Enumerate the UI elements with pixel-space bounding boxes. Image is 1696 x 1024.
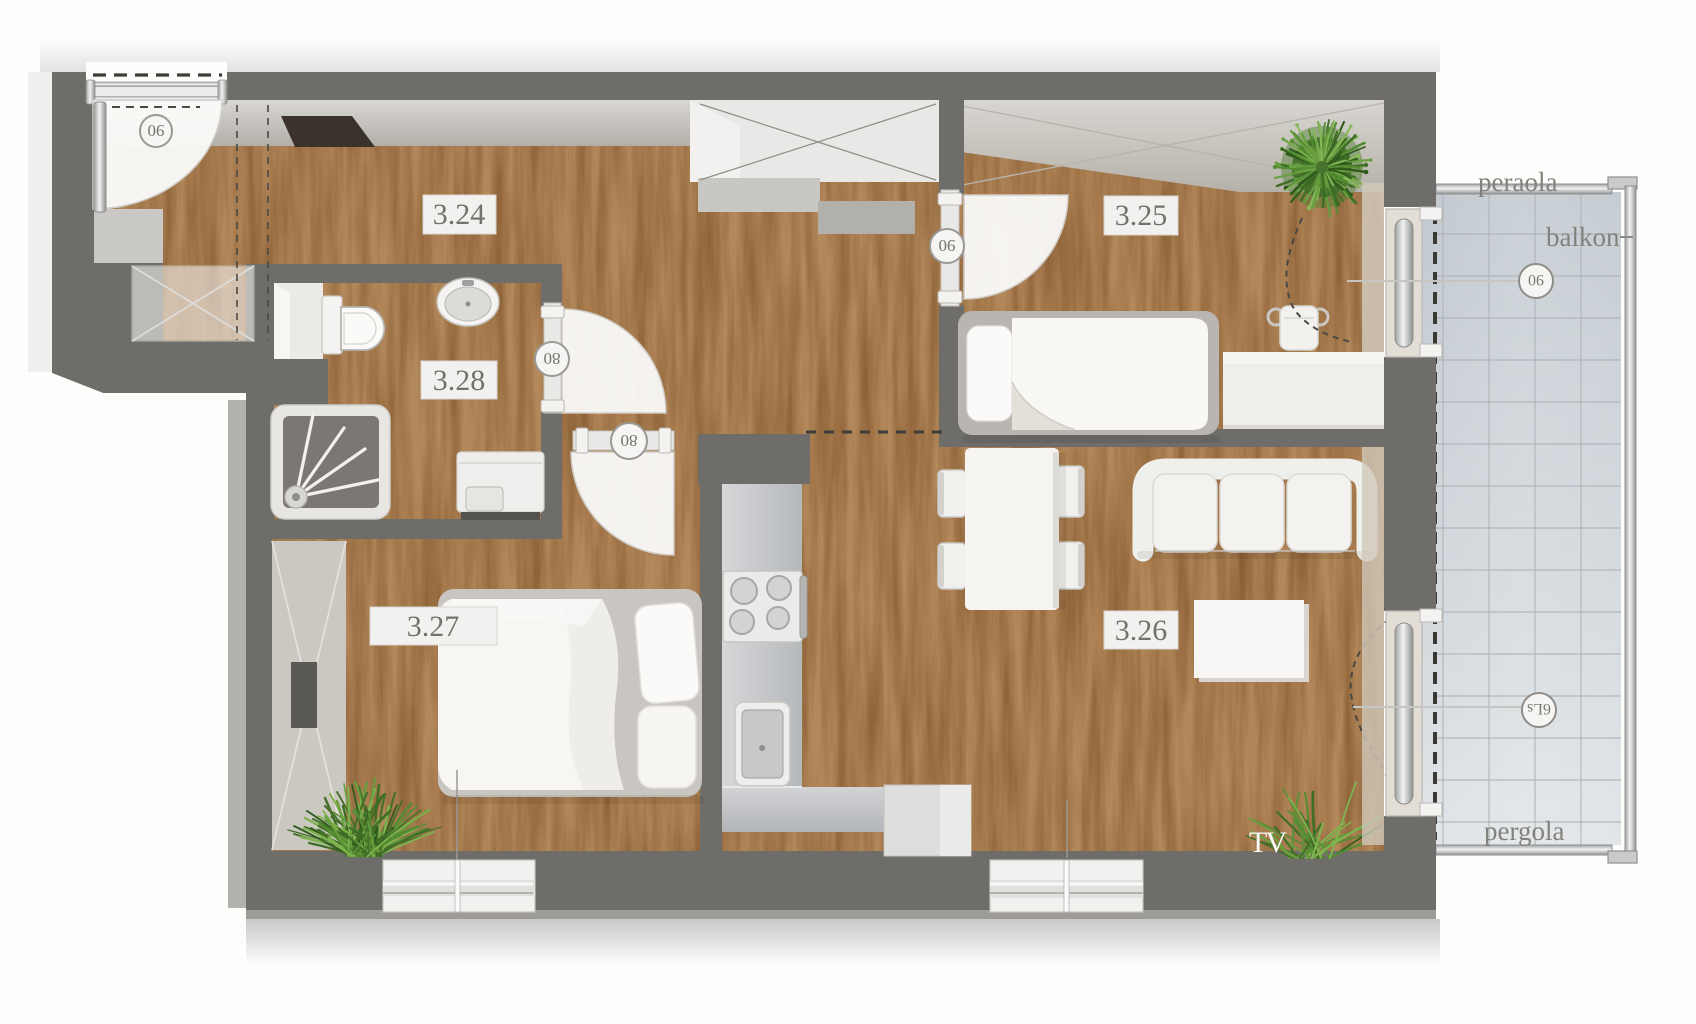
svg-text:80: 80: [544, 349, 561, 368]
svg-text:TV: TV: [1249, 826, 1287, 859]
svg-text:pergola: pergola: [1484, 816, 1564, 846]
svg-text:6Ls: 6Ls: [1527, 700, 1551, 717]
svg-text:3.24: 3.24: [433, 198, 486, 231]
svg-text:3.28: 3.28: [433, 364, 486, 397]
svg-text:90: 90: [1528, 271, 1544, 288]
svg-text:3.27: 3.27: [407, 610, 460, 643]
svg-text:3.25: 3.25: [1115, 199, 1168, 232]
svg-text:80: 80: [621, 431, 638, 450]
svg-text:3.26: 3.26: [1115, 614, 1168, 647]
svg-text:balkon: balkon: [1546, 222, 1620, 252]
svg-text:peraola: peraola: [1478, 167, 1557, 197]
svg-text:90: 90: [939, 236, 956, 255]
svg-text:90: 90: [148, 121, 165, 140]
